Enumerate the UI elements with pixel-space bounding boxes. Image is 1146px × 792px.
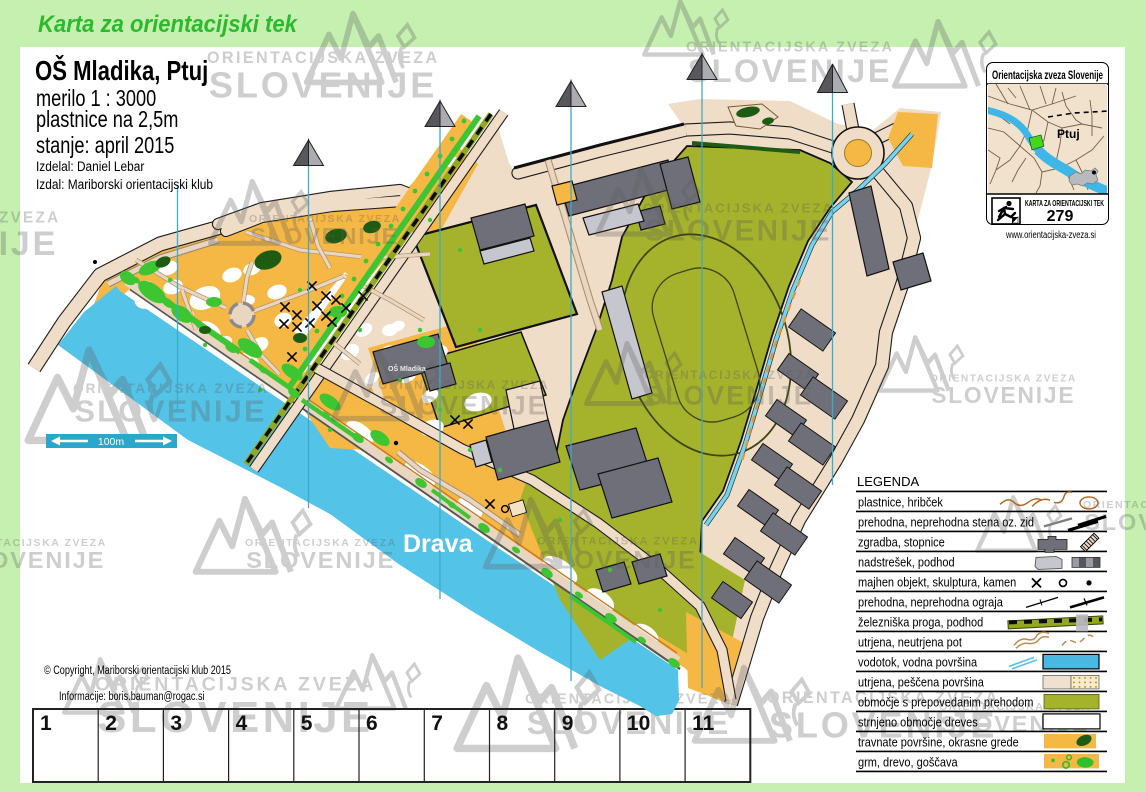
svg-text:Ptuj: Ptuj	[1057, 127, 1080, 141]
svg-text:279: 279	[1047, 208, 1074, 225]
svg-text:www.orientacijska-zveza.si: www.orientacijska-zveza.si	[1005, 230, 1096, 241]
svg-text:Orientacijska zveza Slovenije: Orientacijska zveza Slovenije	[992, 68, 1103, 82]
svg-text:KARTA ZA ORIENTACIJSKI TEK: KARTA ZA ORIENTACIJSKI TEK	[1025, 198, 1104, 208]
